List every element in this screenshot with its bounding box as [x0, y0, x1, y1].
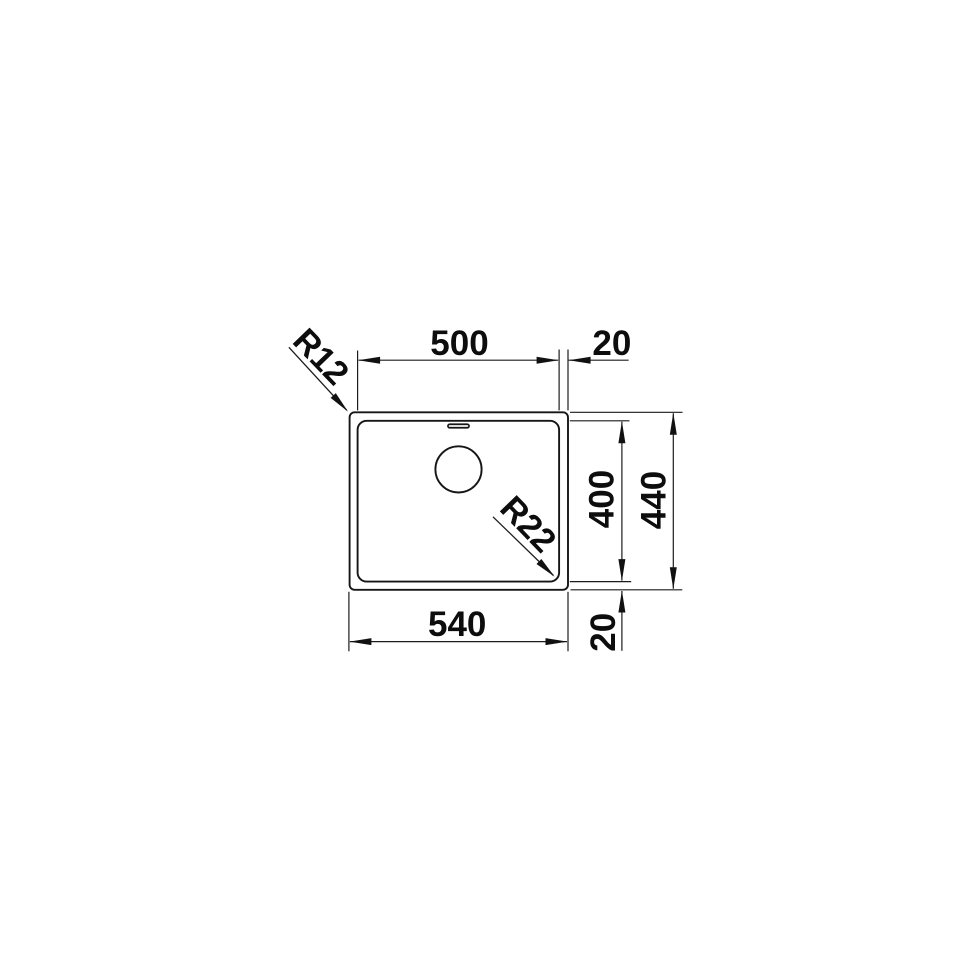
svg-text:20: 20	[592, 324, 631, 363]
svg-text:540: 540	[428, 605, 486, 644]
svg-text:500: 500	[430, 324, 488, 363]
svg-text:R12: R12	[285, 321, 356, 392]
svg-text:440: 440	[635, 471, 674, 529]
svg-text:R22: R22	[493, 489, 564, 560]
svg-text:20: 20	[584, 613, 623, 652]
svg-text:400: 400	[583, 470, 622, 528]
